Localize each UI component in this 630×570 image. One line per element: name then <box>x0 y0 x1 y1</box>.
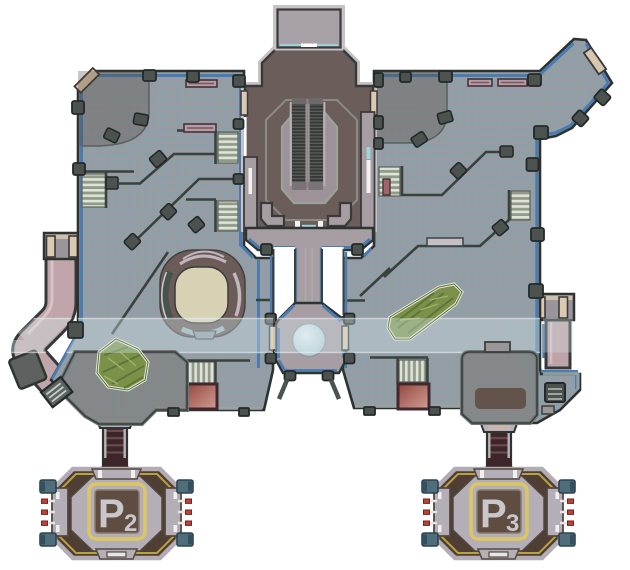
svg-text:P: P <box>98 492 125 536</box>
svg-text:2: 2 <box>124 510 137 537</box>
svg-text:3: 3 <box>506 510 519 537</box>
svg-text:P: P <box>480 492 507 536</box>
